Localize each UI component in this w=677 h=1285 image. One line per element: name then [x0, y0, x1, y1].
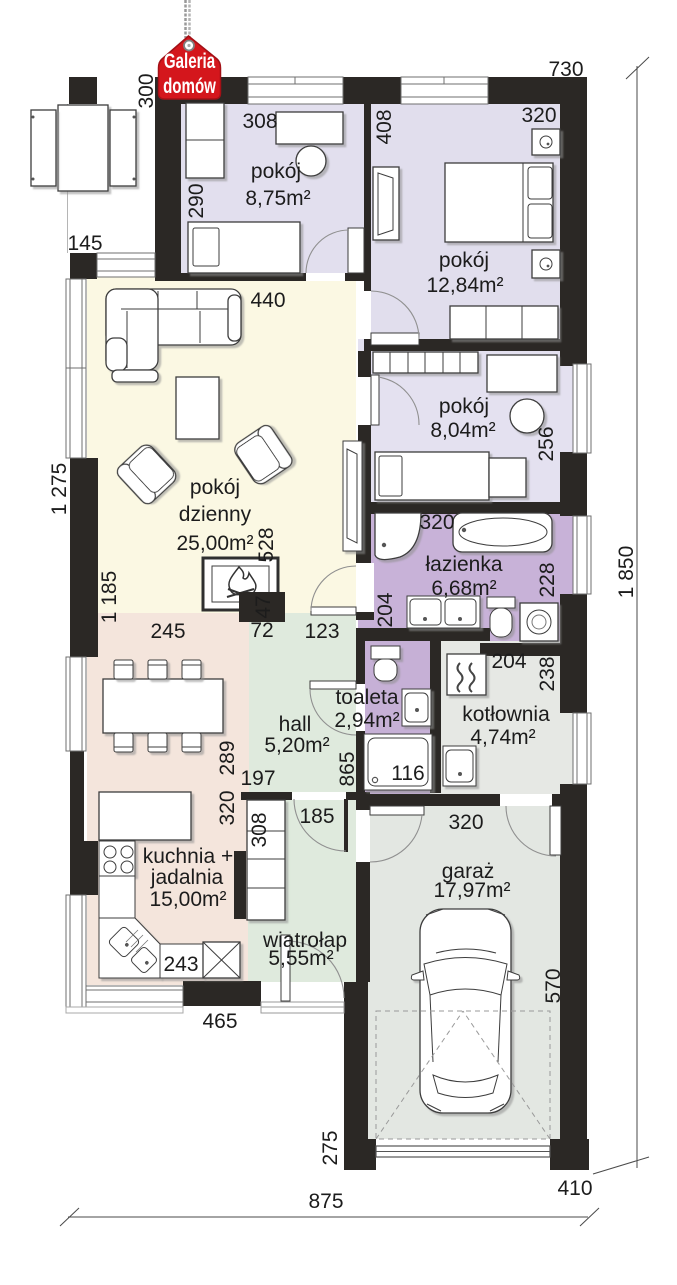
svg-text:Galeria: Galeria [164, 48, 216, 72]
svg-text:300: 300 [135, 73, 158, 108]
svg-text:275: 275 [319, 1130, 342, 1165]
svg-text:145: 145 [67, 232, 102, 255]
svg-text:410: 410 [557, 1177, 592, 1200]
svg-text:465: 465 [202, 1010, 237, 1033]
svg-text:204: 204 [491, 650, 526, 673]
svg-text:320: 320 [521, 104, 556, 127]
svg-text:320: 320 [419, 511, 454, 534]
svg-text:440: 440 [250, 289, 285, 312]
svg-text:15,00m²: 15,00m² [149, 888, 226, 911]
svg-text:17,97m²: 17,97m² [433, 879, 510, 902]
svg-text:197: 197 [240, 767, 275, 790]
svg-text:2,94m²: 2,94m² [334, 709, 399, 732]
svg-text:865: 865 [336, 751, 359, 786]
svg-text:185: 185 [299, 805, 334, 828]
svg-text:308: 308 [242, 110, 277, 133]
svg-text:pokój: pokój [439, 395, 489, 418]
svg-text:320: 320 [216, 790, 239, 825]
svg-text:łazienka: łazienka [425, 553, 502, 576]
svg-text:1 275: 1 275 [48, 463, 71, 516]
svg-text:12,84m²: 12,84m² [426, 274, 503, 297]
svg-text:1 185: 1 185 [98, 571, 121, 624]
svg-text:pokój: pokój [251, 160, 301, 183]
svg-text:123: 123 [304, 620, 339, 643]
svg-text:pokój: pokój [439, 249, 489, 272]
svg-text:1 850: 1 850 [615, 546, 638, 599]
svg-text:116: 116 [391, 762, 424, 785]
svg-text:570: 570 [542, 968, 565, 1003]
svg-text:hall: hall [279, 713, 312, 736]
svg-text:256: 256 [535, 426, 558, 461]
svg-text:408: 408 [373, 109, 396, 144]
svg-text:4,74m²: 4,74m² [470, 726, 535, 749]
svg-text:8,75m²: 8,75m² [245, 187, 310, 210]
svg-text:308: 308 [248, 812, 271, 847]
svg-text:kuchnia +: kuchnia + [143, 845, 233, 868]
svg-text:dzienny: dzienny [179, 503, 252, 526]
svg-text:204: 204 [374, 592, 397, 627]
svg-text:730: 730 [548, 58, 583, 81]
svg-text:243: 243 [163, 953, 198, 976]
svg-text:290: 290 [185, 183, 208, 218]
svg-text:5,55m²: 5,55m² [268, 947, 333, 970]
svg-text:72: 72 [250, 619, 273, 642]
svg-text:238: 238 [536, 656, 559, 691]
svg-text:jadalnia: jadalnia [150, 866, 224, 889]
svg-text:875: 875 [308, 1190, 343, 1213]
svg-text:245: 245 [150, 620, 185, 643]
svg-text:kotłownia: kotłownia [462, 703, 550, 726]
svg-text:8,04m²: 8,04m² [430, 419, 495, 442]
svg-text:289: 289 [216, 740, 239, 775]
svg-text:320: 320 [448, 811, 483, 834]
svg-text:528: 528 [255, 527, 278, 562]
svg-text:pokój: pokój [190, 476, 240, 499]
svg-text:47: 47 [252, 595, 275, 618]
svg-text:228: 228 [536, 562, 559, 597]
svg-text:6,68m²: 6,68m² [431, 577, 496, 600]
svg-text:domów: domów [163, 73, 217, 97]
svg-text:5,20m²: 5,20m² [264, 734, 329, 757]
svg-text:25,00m²: 25,00m² [176, 532, 253, 555]
svg-text:toaleta: toaleta [335, 686, 398, 709]
